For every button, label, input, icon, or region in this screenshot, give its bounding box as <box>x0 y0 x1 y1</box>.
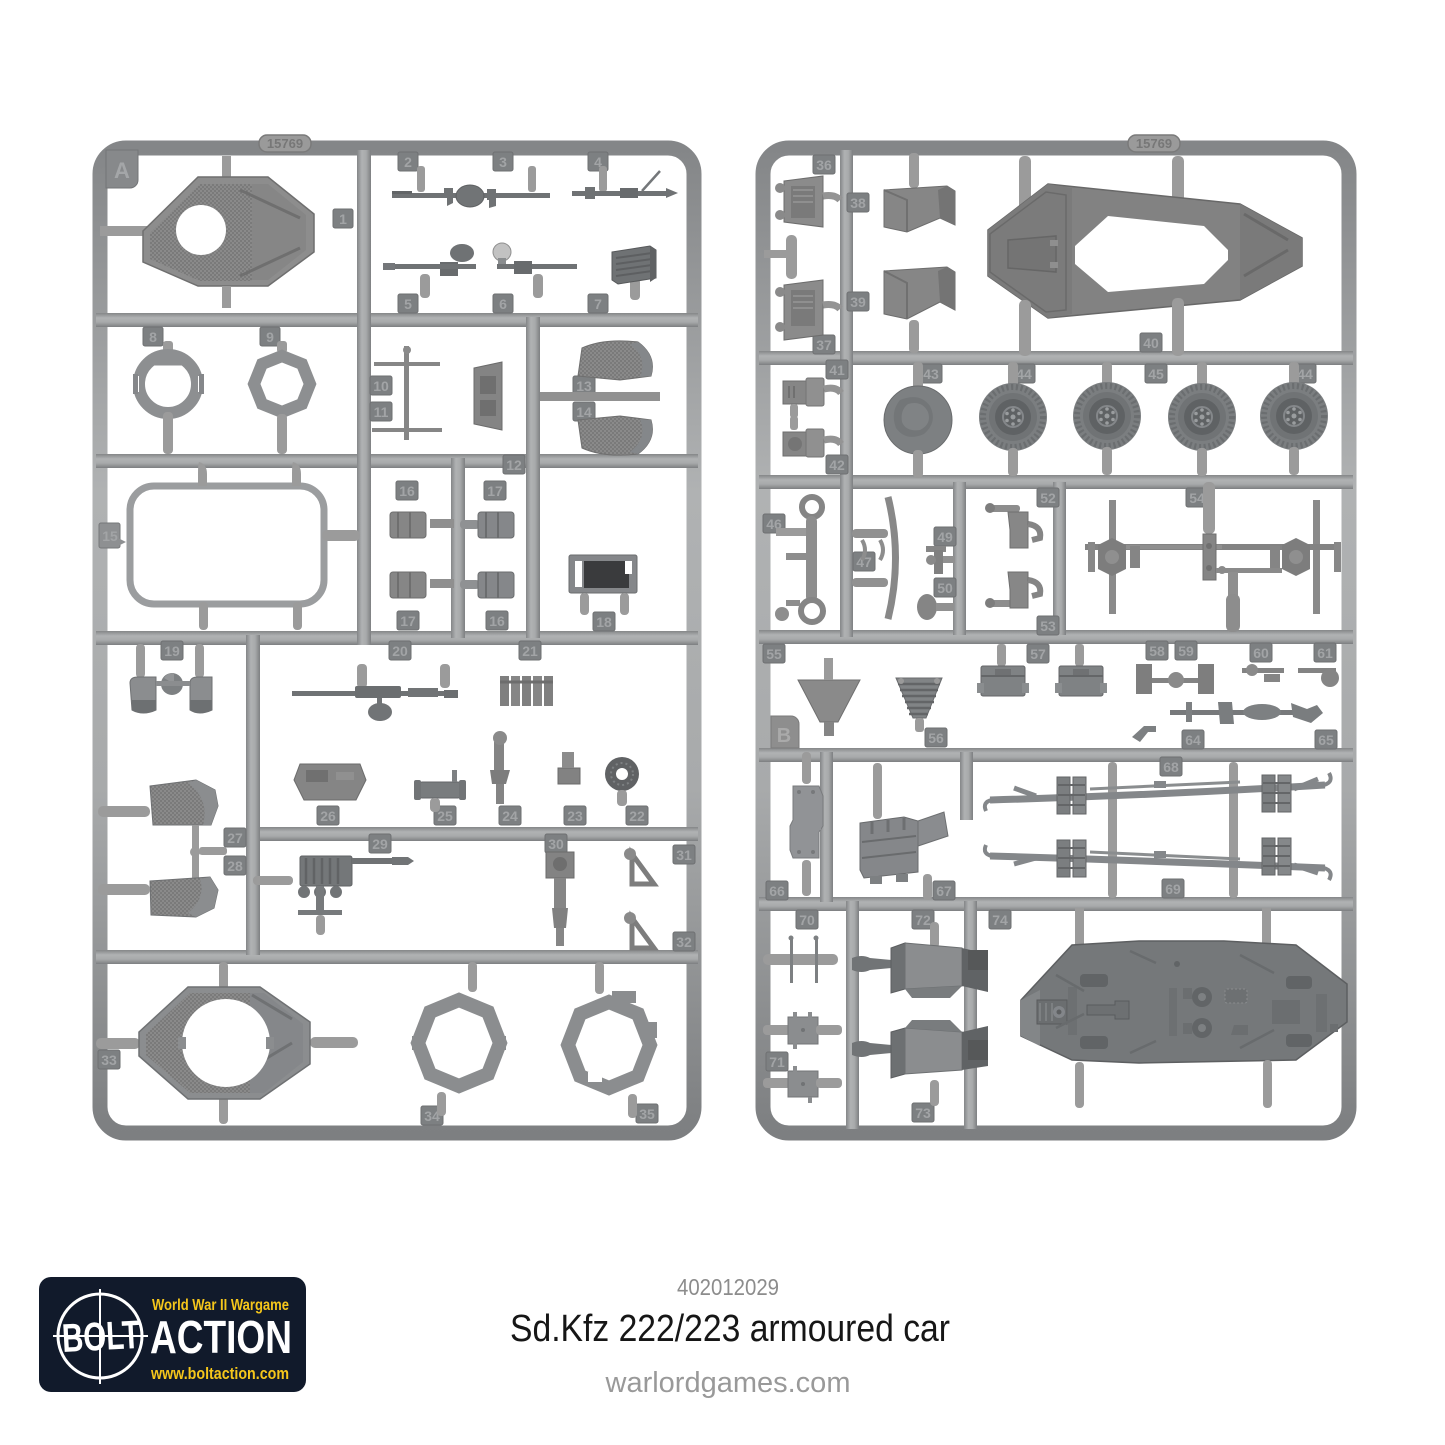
svg-text:49: 49 <box>937 529 953 545</box>
svg-text:69: 69 <box>1165 881 1181 897</box>
svg-text:9: 9 <box>266 329 274 345</box>
svg-text:5: 5 <box>404 296 412 312</box>
svg-text:23: 23 <box>567 808 583 824</box>
svg-text:15: 15 <box>102 528 118 544</box>
svg-text:17: 17 <box>487 483 503 499</box>
svg-text:60: 60 <box>1253 645 1269 661</box>
svg-text:ACTION: ACTION <box>150 1311 292 1363</box>
svg-text:58: 58 <box>1149 643 1165 659</box>
svg-text:22: 22 <box>629 808 645 824</box>
svg-text:59: 59 <box>1178 643 1194 659</box>
svg-text:68: 68 <box>1163 759 1179 775</box>
svg-text:31: 31 <box>676 847 692 863</box>
svg-text:73: 73 <box>915 1105 931 1121</box>
svg-text:38: 38 <box>850 195 866 211</box>
svg-text:40: 40 <box>1143 335 1159 351</box>
svg-text:64: 64 <box>1185 732 1201 748</box>
svg-text:3: 3 <box>499 154 507 170</box>
svg-text:15769: 15769 <box>1136 136 1172 151</box>
svg-text:71: 71 <box>769 1054 785 1070</box>
svg-text:B: B <box>777 725 791 747</box>
svg-text:61: 61 <box>1317 645 1333 661</box>
svg-text:66: 66 <box>769 883 785 899</box>
svg-text:www.boltaction.com: www.boltaction.com <box>150 1364 289 1383</box>
svg-text:16: 16 <box>399 483 415 499</box>
svg-text:28: 28 <box>227 858 243 874</box>
svg-text:Sd.Kfz 222/223 armoured car: Sd.Kfz 222/223 armoured car <box>510 1308 950 1350</box>
svg-text:20: 20 <box>392 643 408 659</box>
svg-text:warlordgames.com: warlordgames.com <box>605 1367 851 1399</box>
svg-text:19: 19 <box>164 643 180 659</box>
svg-text:44: 44 <box>1297 366 1313 382</box>
svg-text:50: 50 <box>937 580 953 596</box>
svg-text:14: 14 <box>576 404 592 420</box>
svg-text:25: 25 <box>437 808 453 824</box>
svg-text:52: 52 <box>1040 490 1056 506</box>
svg-text:27: 27 <box>227 830 243 846</box>
svg-text:18: 18 <box>596 614 612 630</box>
svg-text:53: 53 <box>1040 618 1056 634</box>
svg-text:8: 8 <box>149 329 157 345</box>
svg-text:33: 33 <box>101 1052 117 1068</box>
svg-text:21: 21 <box>522 643 538 659</box>
svg-text:36: 36 <box>816 157 832 173</box>
svg-text:55: 55 <box>766 646 782 662</box>
svg-text:12: 12 <box>506 457 522 473</box>
svg-text:17: 17 <box>400 613 416 629</box>
svg-text:67: 67 <box>936 883 952 899</box>
svg-text:35: 35 <box>639 1106 655 1122</box>
svg-text:70: 70 <box>799 912 815 928</box>
svg-text:41: 41 <box>829 362 845 378</box>
svg-text:32: 32 <box>676 934 692 950</box>
svg-text:A: A <box>114 158 130 183</box>
svg-text:65: 65 <box>1318 732 1334 748</box>
svg-text:74: 74 <box>992 912 1008 928</box>
svg-text:1: 1 <box>339 211 347 227</box>
svg-text:15769: 15769 <box>267 136 303 151</box>
svg-text:44: 44 <box>1016 366 1032 382</box>
svg-text:7: 7 <box>594 296 602 312</box>
svg-text:11: 11 <box>374 404 389 420</box>
svg-text:2: 2 <box>404 154 412 170</box>
svg-text:6: 6 <box>499 296 507 312</box>
svg-text:37: 37 <box>816 337 832 353</box>
svg-text:10: 10 <box>373 378 389 394</box>
svg-text:39: 39 <box>850 294 866 310</box>
svg-text:42: 42 <box>829 457 845 473</box>
svg-text:45: 45 <box>1148 366 1164 382</box>
svg-text:29: 29 <box>372 836 388 852</box>
svg-text:56: 56 <box>928 730 944 746</box>
svg-text:26: 26 <box>320 808 336 824</box>
svg-text:13: 13 <box>576 378 592 394</box>
svg-text:30: 30 <box>548 836 564 852</box>
svg-text:43: 43 <box>923 366 939 382</box>
svg-text:16: 16 <box>489 613 505 629</box>
svg-text:57: 57 <box>1030 646 1046 662</box>
svg-text:72: 72 <box>915 912 931 928</box>
svg-text:402012029: 402012029 <box>677 1274 779 1300</box>
svg-text:BOLT: BOLT <box>61 1313 141 1361</box>
svg-text:54: 54 <box>1189 490 1205 506</box>
svg-text:24: 24 <box>502 808 518 824</box>
